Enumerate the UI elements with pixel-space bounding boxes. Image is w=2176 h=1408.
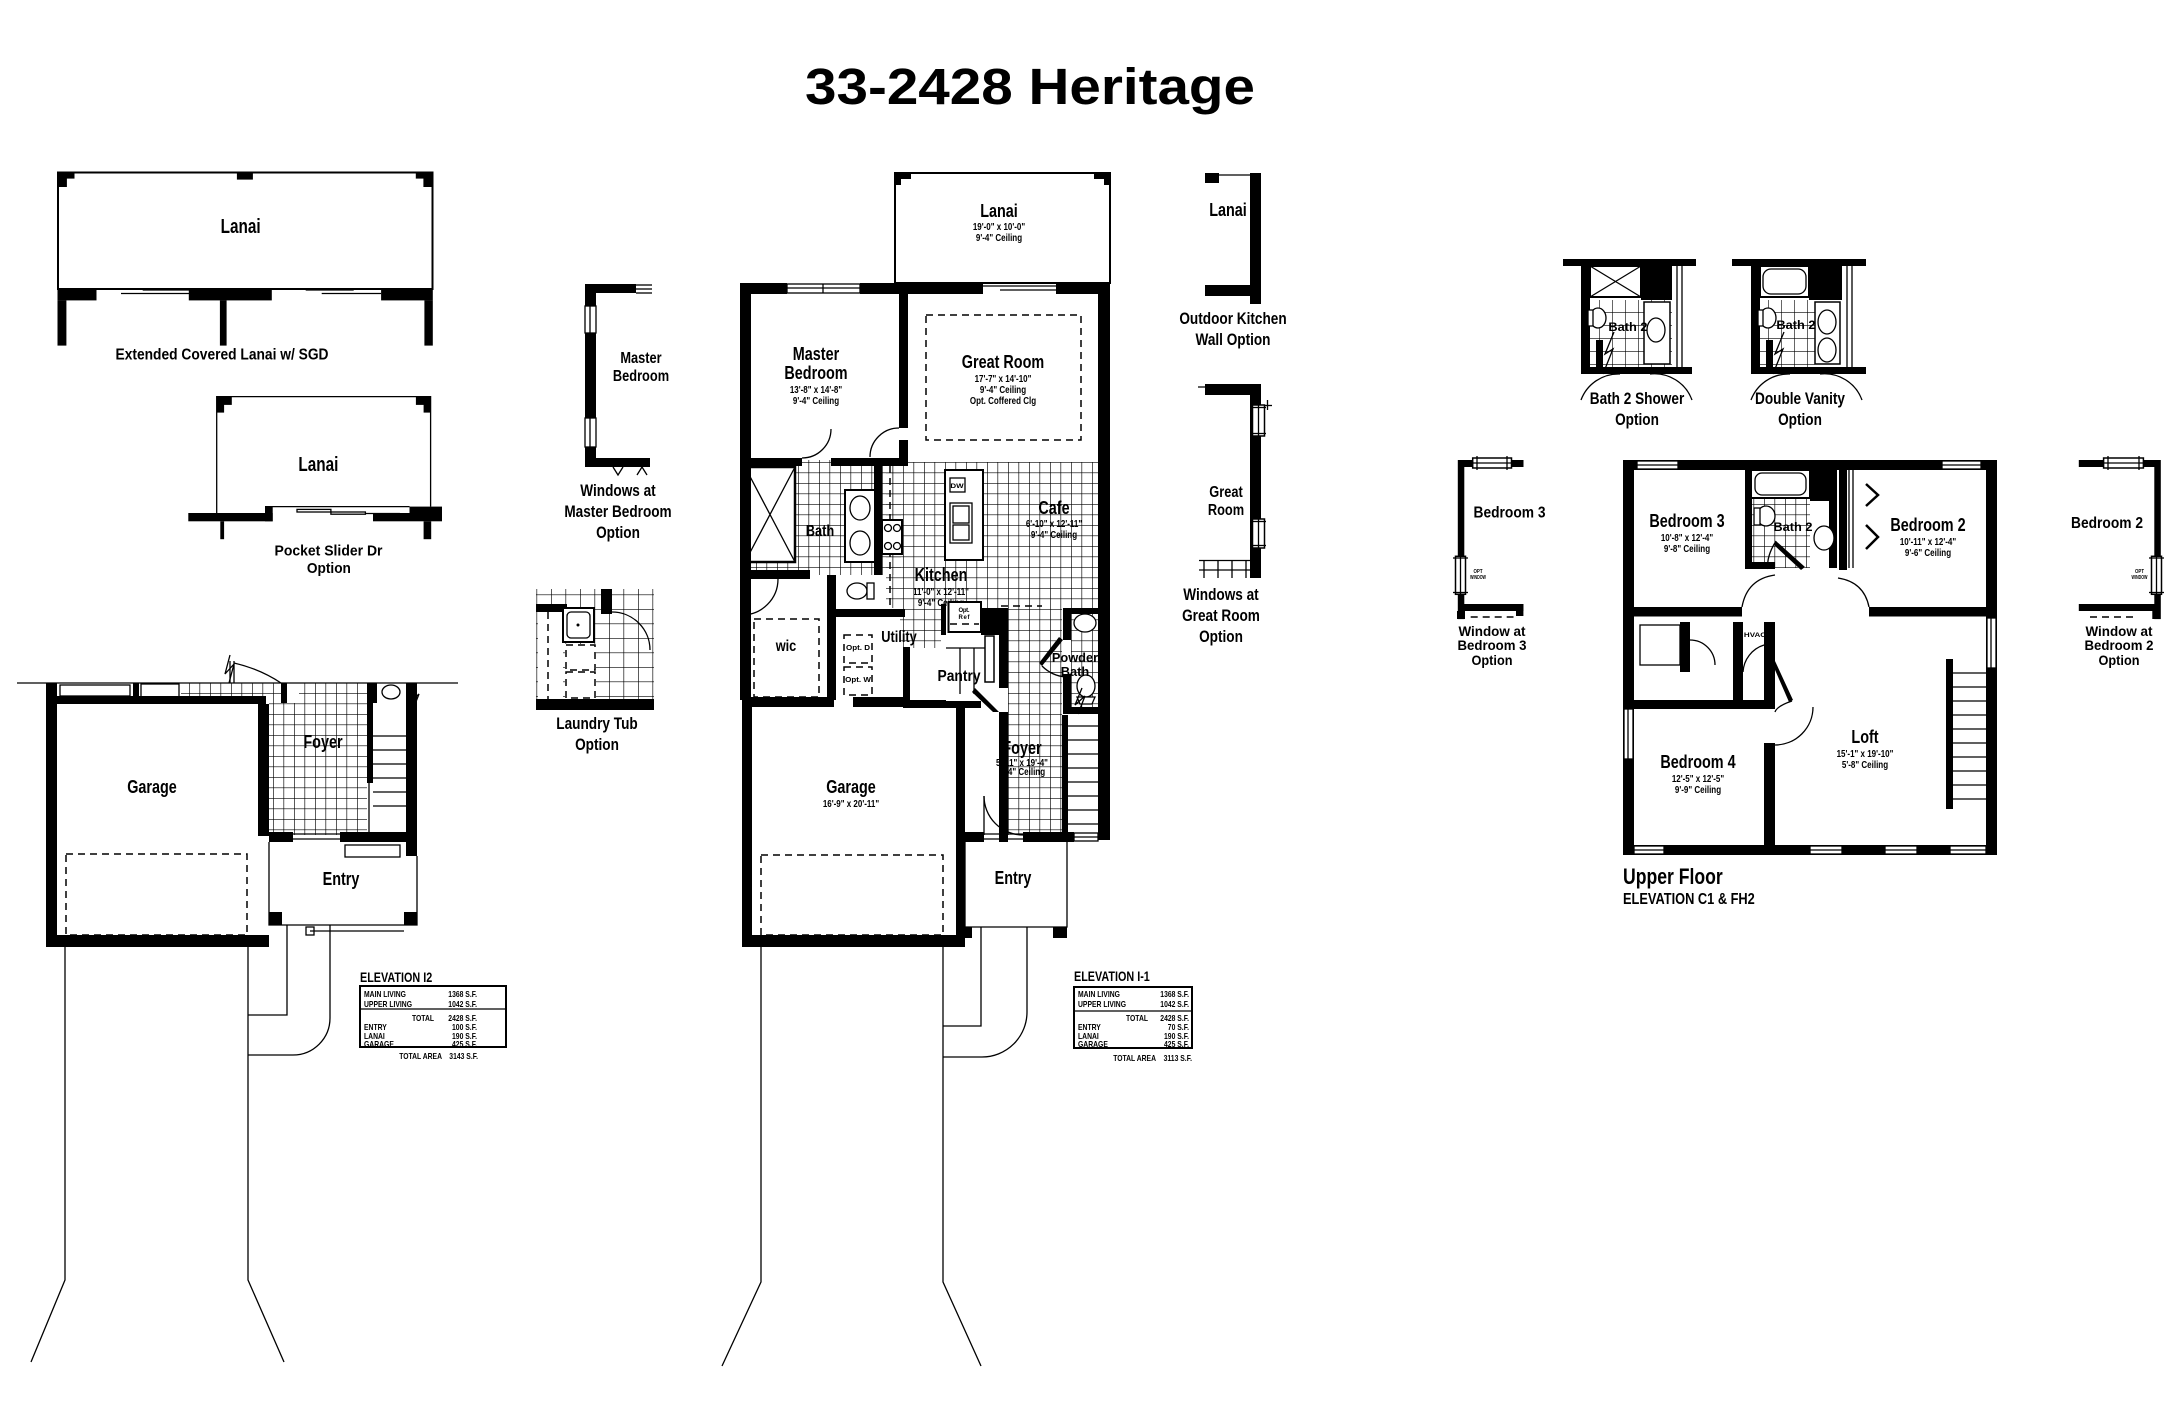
svg-text:HVAC: HVAC [1744, 632, 1766, 639]
svg-text:9'-4" Ceiling: 9'-4" Ceiling [1031, 530, 1077, 541]
svg-text:9'-8" Ceiling: 9'-8" Ceiling [1664, 544, 1710, 555]
svg-text:wic: wic [775, 638, 796, 655]
svg-text:3143 S.F.: 3143 S.F. [449, 1051, 478, 1061]
svg-text:Opt.: Opt. [959, 608, 970, 614]
svg-text:1368 S.F.: 1368 S.F. [1160, 989, 1189, 999]
svg-text:Opt. Coffered Clg: Opt. Coffered Clg [970, 396, 1036, 407]
svg-text:Cafe: Cafe [1038, 498, 1069, 518]
svg-text:10'-11" x 12'-4": 10'-11" x 12'-4" [1900, 537, 1956, 548]
svg-text:9'-4" Ceiling: 9'-4" Ceiling [793, 396, 839, 407]
svg-text:UPPER LIVING: UPPER LIVING [1078, 999, 1126, 1009]
svg-text:Opt. W: Opt. W [845, 677, 871, 684]
svg-text:TOTAL AREA: TOTAL AREA [399, 1051, 442, 1061]
svg-text:Ref: Ref [959, 615, 971, 621]
svg-text:425 S.F.: 425 S.F. [1164, 1039, 1189, 1049]
svg-text:Opt. D: Opt. D [846, 645, 870, 652]
svg-text:GARAGE: GARAGE [364, 1039, 394, 1049]
svg-text:Windows at: Windows at [1183, 585, 1259, 604]
svg-text:WINDOW: WINDOW [2132, 575, 2148, 581]
svg-text:DW: DW [950, 484, 964, 490]
svg-text:1042 S.F.: 1042 S.F. [1160, 999, 1189, 1009]
svg-text:13'-8" x 14'-8": 13'-8" x 14'-8" [790, 385, 843, 396]
svg-text:Pocket Slider Dr: Pocket Slider Dr [275, 543, 383, 560]
svg-text:MAIN LIVING: MAIN LIVING [1078, 989, 1120, 999]
svg-text:Bedroom: Bedroom [613, 368, 669, 385]
svg-text:Option: Option [596, 523, 640, 542]
svg-text:Powder: Powder [1052, 650, 1098, 665]
svg-text:Extended Covered Lanai w/ SGD: Extended Covered Lanai w/ SGD [116, 347, 329, 364]
svg-text:Entry: Entry [995, 868, 1032, 888]
svg-text:Bath 2 Shower: Bath 2 Shower [1590, 389, 1685, 408]
svg-text:Utility: Utility [881, 629, 917, 646]
svg-text:Garage: Garage [826, 777, 876, 797]
svg-text:ELEVATION I2: ELEVATION I2 [360, 970, 432, 985]
svg-text:Option: Option [1615, 410, 1659, 429]
svg-text:Window at: Window at [1459, 624, 1526, 639]
svg-text:Option: Option [1199, 627, 1243, 646]
svg-text:5'-8" Ceiling: 5'-8" Ceiling [1842, 760, 1888, 771]
svg-text:12'-5" x 12'-5": 12'-5" x 12'-5" [1672, 774, 1725, 785]
svg-text:TOTAL: TOTAL [1126, 1013, 1148, 1023]
svg-text:TOTAL: TOTAL [412, 1013, 434, 1023]
svg-text:19'-0" x 10'-0": 19'-0" x 10'-0" [973, 222, 1026, 233]
svg-text:9'-4" Ceiling: 9'-4" Ceiling [999, 767, 1045, 778]
svg-text:Pantry: Pantry [938, 668, 981, 685]
svg-text:Lanai: Lanai [980, 201, 1018, 221]
svg-text:425 S.F.: 425 S.F. [452, 1039, 477, 1049]
svg-text:Option: Option [1472, 653, 1513, 668]
svg-text:9'-4" Ceiling: 9'-4" Ceiling [976, 233, 1022, 244]
svg-text:Bath: Bath [1061, 664, 1090, 679]
svg-text:Bedroom 2: Bedroom 2 [2085, 638, 2154, 653]
svg-text:Bedroom 2: Bedroom 2 [1890, 515, 1965, 535]
svg-text:Option: Option [2099, 653, 2140, 668]
svg-text:Bath 2: Bath 2 [1776, 320, 1815, 332]
svg-text:Window at: Window at [2086, 624, 2153, 639]
svg-text:Great Room: Great Room [962, 352, 1044, 372]
svg-text:15'-1" x 19'-10": 15'-1" x 19'-10" [1837, 749, 1894, 760]
svg-text:6'-10" x 12'-11": 6'-10" x 12'-11" [1026, 519, 1082, 530]
svg-text:Room: Room [1208, 502, 1244, 519]
svg-text:Lanai: Lanai [221, 216, 261, 238]
svg-text:Bath 2: Bath 2 [1773, 522, 1812, 534]
svg-text:Windows at: Windows at [580, 481, 656, 500]
svg-text:Bedroom 4: Bedroom 4 [1660, 752, 1735, 772]
svg-text:WINDOW: WINDOW [1470, 575, 1486, 581]
svg-text:3113 S.F.: 3113 S.F. [1164, 1053, 1192, 1063]
svg-text:10'-8" x 12'-4": 10'-8" x 12'-4" [1661, 533, 1714, 544]
svg-text:Loft: Loft [1851, 727, 1878, 747]
svg-text:ELEVATION C1 & FH2: ELEVATION C1 & FH2 [1623, 891, 1755, 908]
svg-text:Great Room: Great Room [1182, 606, 1260, 625]
svg-text:Lanai: Lanai [1209, 200, 1247, 220]
svg-text:Outdoor Kitchen: Outdoor Kitchen [1179, 309, 1286, 328]
svg-text:9'-6" Ceiling: 9'-6" Ceiling [1905, 548, 1951, 559]
svg-text:Option: Option [307, 560, 351, 577]
svg-text:Double Vanity: Double Vanity [1755, 389, 1845, 408]
svg-text:Wall Option: Wall Option [1196, 330, 1271, 349]
svg-text:9'-4" Ceiling: 9'-4" Ceiling [980, 385, 1026, 396]
svg-text:1368 S.F.: 1368 S.F. [448, 989, 477, 999]
svg-text:Bedroom: Bedroom [784, 363, 847, 383]
svg-text:Bath: Bath [806, 523, 835, 540]
svg-text:Master Bedroom: Master Bedroom [564, 502, 671, 521]
svg-text:Bedroom 3: Bedroom 3 [1649, 511, 1724, 531]
svg-text:Bedroom 3: Bedroom 3 [1458, 638, 1527, 653]
svg-text:Foyer: Foyer [1002, 738, 1041, 758]
svg-text:1042 S.F.: 1042 S.F. [448, 999, 477, 1009]
svg-text:Master: Master [620, 350, 661, 367]
svg-text:Bedroom 3: Bedroom 3 [1474, 505, 1546, 522]
svg-text:Option: Option [575, 735, 619, 754]
svg-text:Great: Great [1209, 484, 1243, 501]
svg-text:33-2428 Heritage: 33-2428 Heritage [805, 58, 1255, 115]
svg-text:11'-0" x 12'-11": 11'-0" x 12'-11" [913, 587, 969, 598]
svg-text:Upper Floor: Upper Floor [1623, 864, 1723, 889]
svg-text:Option: Option [1778, 410, 1822, 429]
svg-text:Garage: Garage [127, 777, 177, 797]
svg-text:Lanai: Lanai [298, 454, 338, 476]
svg-text:16'-9" x 20'-11": 16'-9" x 20'-11" [823, 799, 879, 810]
svg-text:17'-7" x 14'-10": 17'-7" x 14'-10" [975, 374, 1032, 385]
svg-text:ELEVATION I-1: ELEVATION I-1 [1074, 969, 1150, 984]
svg-text:MAIN LIVING: MAIN LIVING [364, 989, 406, 999]
svg-text:9'-9" Ceiling: 9'-9" Ceiling [1675, 785, 1721, 796]
svg-text:Master: Master [793, 344, 839, 364]
svg-text:UPPER LIVING: UPPER LIVING [364, 999, 412, 1009]
svg-text:Bedroom 2: Bedroom 2 [2071, 515, 2143, 532]
svg-text:Laundry Tub: Laundry Tub [556, 714, 637, 733]
svg-text:TOTAL AREA: TOTAL AREA [1113, 1053, 1156, 1063]
svg-text:GARAGE: GARAGE [1078, 1039, 1108, 1049]
svg-text:Entry: Entry [323, 869, 360, 889]
svg-text:Foyer: Foyer [303, 732, 342, 752]
svg-text:Kitchen: Kitchen [915, 565, 968, 585]
